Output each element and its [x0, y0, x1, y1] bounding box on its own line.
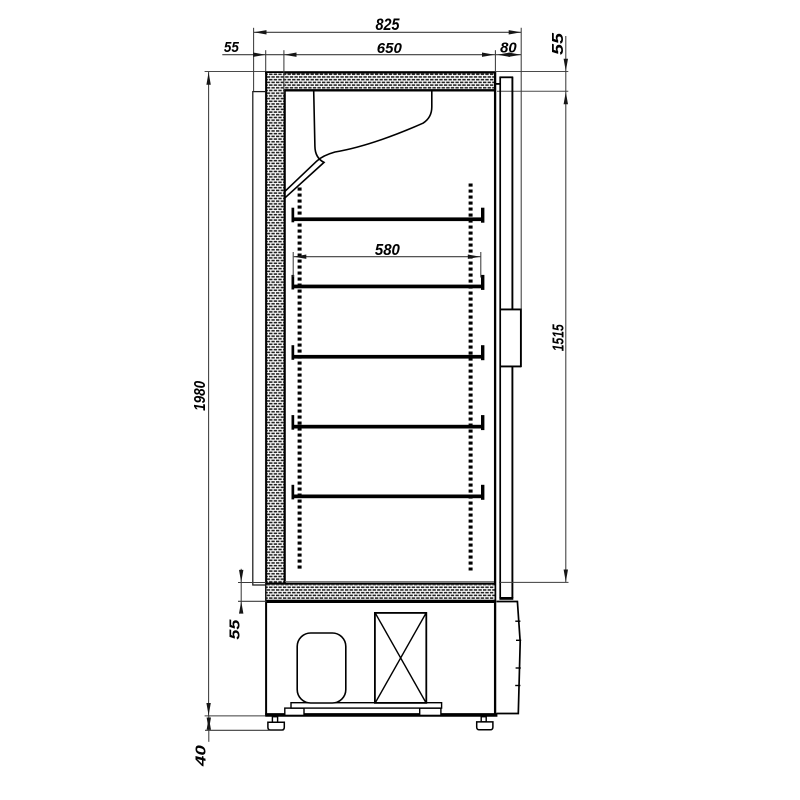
svg-text:55: 55 [550, 33, 567, 55]
svg-text:580: 580 [375, 242, 400, 259]
svg-text:1515: 1515 [550, 324, 567, 351]
svg-text:650: 650 [377, 40, 403, 57]
svg-text:40: 40 [193, 744, 210, 767]
svg-text:55: 55 [224, 39, 240, 56]
svg-text:55: 55 [227, 619, 244, 640]
svg-text:1980: 1980 [192, 381, 209, 411]
svg-text:825: 825 [376, 15, 400, 34]
svg-text:80: 80 [500, 40, 517, 57]
